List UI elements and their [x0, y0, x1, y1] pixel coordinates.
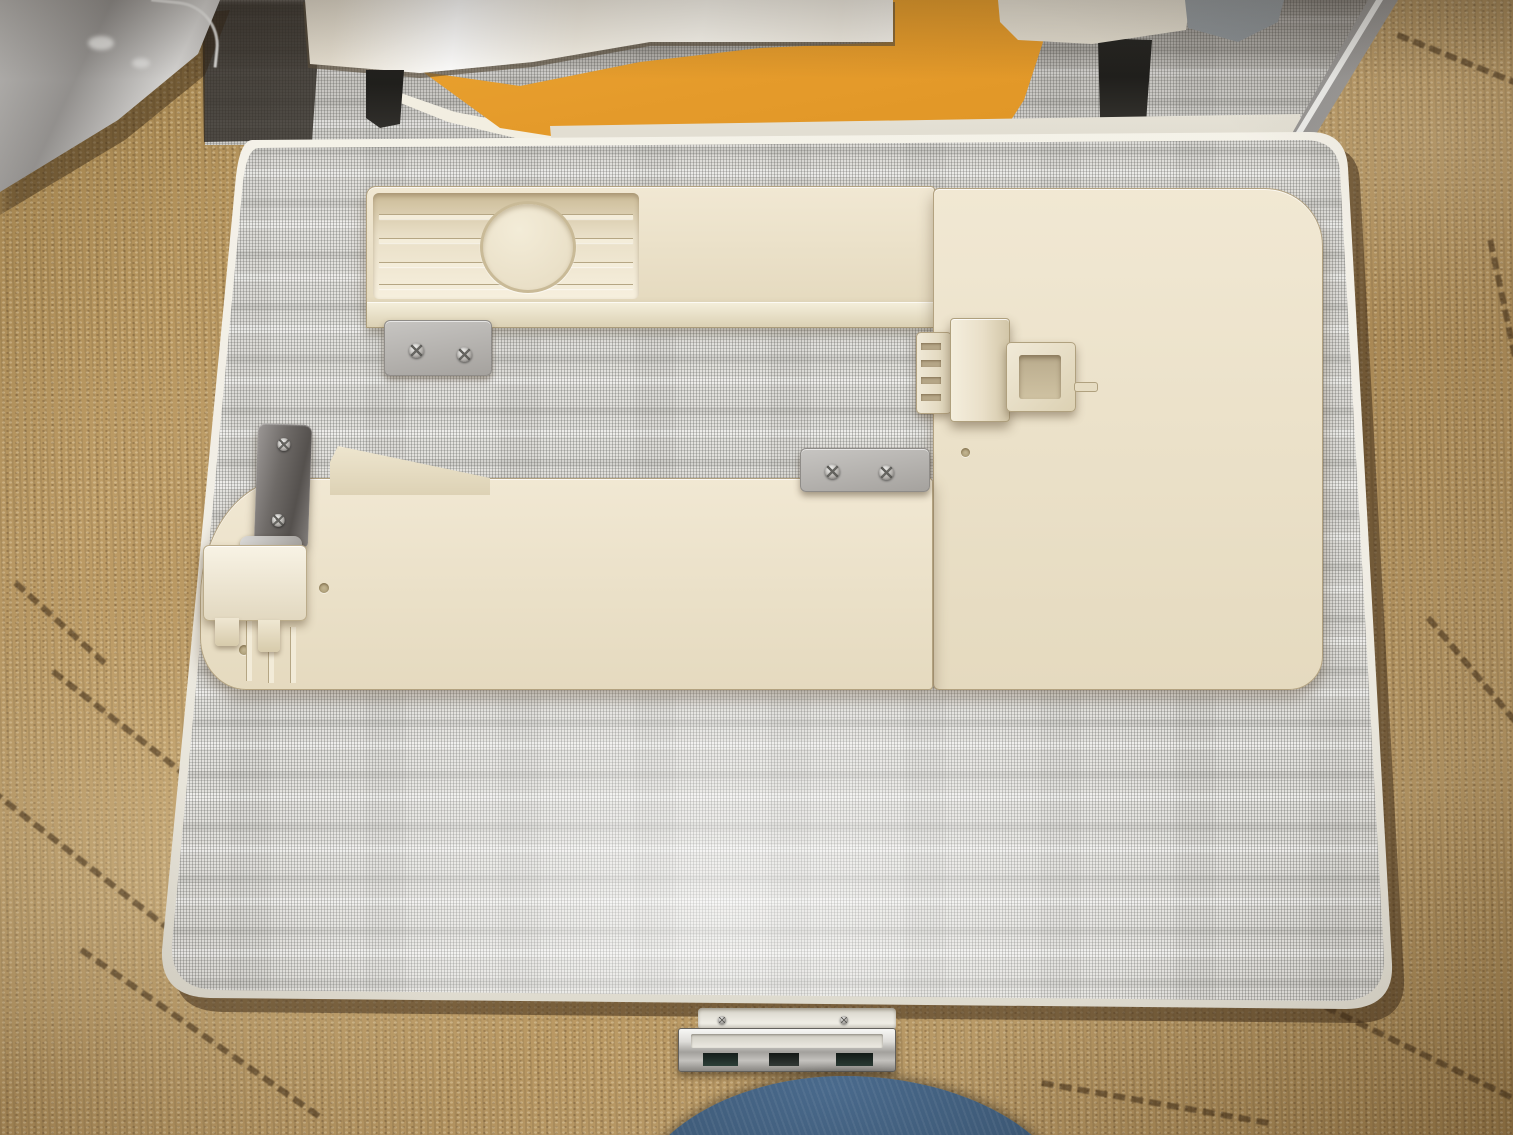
circular-boss	[480, 201, 576, 293]
cap-rib	[291, 627, 296, 683]
cap-hole	[319, 583, 329, 593]
comb-slot	[921, 360, 941, 367]
bracket-plate-top	[384, 320, 492, 376]
latch-slot	[836, 1053, 873, 1066]
latch-body	[678, 1028, 896, 1072]
latch-recess	[691, 1034, 883, 1048]
screw	[879, 465, 894, 480]
white-latch-block	[203, 545, 307, 621]
comb-slot	[921, 343, 941, 350]
bracket-plate-mid	[800, 448, 930, 492]
box-stud	[950, 318, 1010, 422]
insert-top-grid	[645, 191, 932, 301]
screw	[409, 343, 424, 358]
comb-slot	[921, 394, 941, 401]
insert-bottom-grid	[331, 479, 934, 691]
clip-bracket	[1006, 342, 1076, 412]
latch-slot	[703, 1053, 738, 1066]
latch-groove	[698, 1008, 896, 1030]
insert-right-block	[933, 188, 1323, 690]
screw	[825, 464, 840, 479]
latch-screw	[718, 1016, 726, 1024]
clip-bracket-opening	[1019, 355, 1061, 399]
comb-slot	[921, 377, 941, 384]
aluminum-speck	[88, 36, 114, 50]
insert-bottom-strip	[200, 478, 933, 690]
chrome-bracket	[254, 423, 312, 547]
photo-stage	[0, 0, 1513, 1135]
block-leg	[215, 618, 239, 646]
block-leg	[258, 620, 280, 652]
clip-stem	[1074, 382, 1098, 392]
latch-screw	[840, 1016, 848, 1024]
screw	[272, 514, 285, 527]
screw	[457, 347, 472, 362]
screw	[277, 438, 290, 451]
comb-clip	[916, 332, 952, 414]
stud-hole	[961, 448, 970, 457]
latch-slot	[769, 1053, 799, 1066]
insert-pocket	[373, 193, 639, 299]
insert-top-strip	[366, 186, 935, 304]
cap-rib	[247, 619, 252, 681]
